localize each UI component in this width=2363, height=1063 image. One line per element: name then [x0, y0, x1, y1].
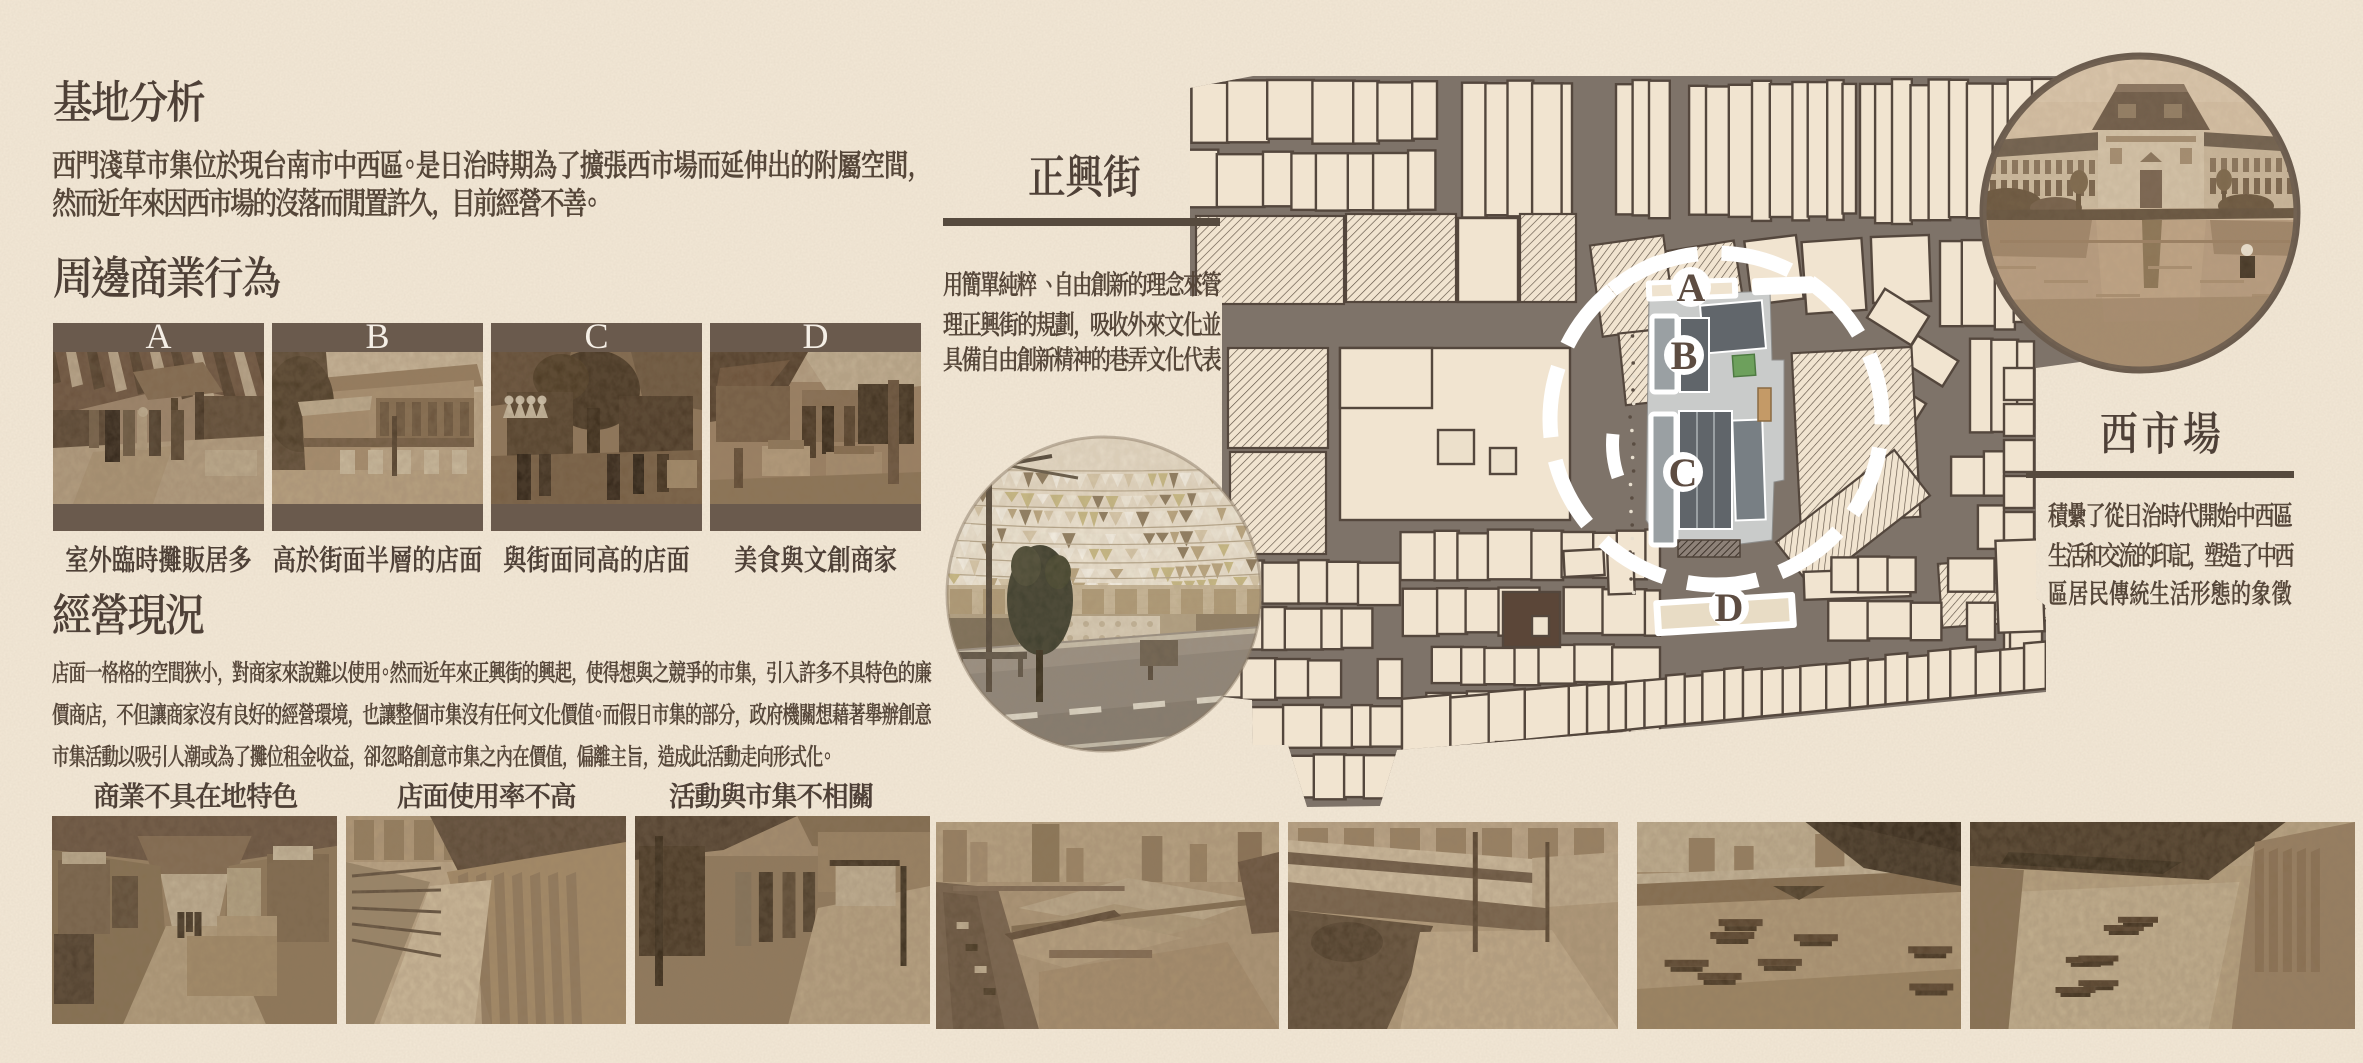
svg-text:C: C — [584, 316, 608, 356]
svg-text:C: C — [1669, 450, 1698, 495]
svg-text:B: B — [365, 316, 389, 356]
svg-text:A: A — [146, 316, 172, 356]
svg-text:D: D — [1715, 585, 1744, 630]
svg-text:B: B — [1671, 333, 1698, 378]
svg-text:A: A — [1677, 265, 1706, 310]
svg-text:D: D — [803, 316, 829, 356]
